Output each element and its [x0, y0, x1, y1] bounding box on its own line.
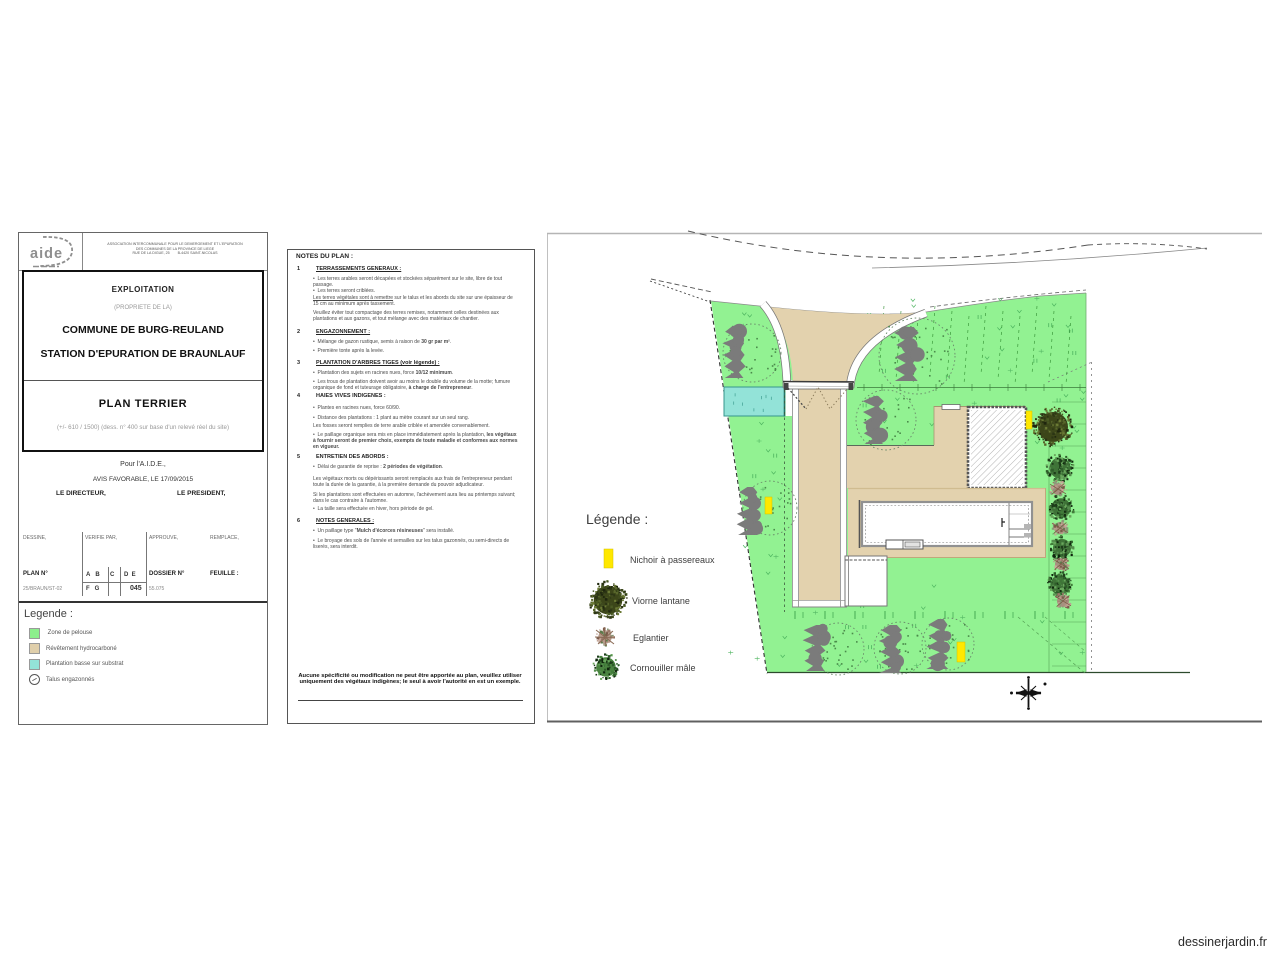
svg-text:Légende :: Légende :: [586, 511, 648, 527]
svg-text:aide: aide: [30, 246, 63, 262]
svg-text:Viorne lantane: Viorne lantane: [632, 596, 690, 606]
svg-text:Nichoir à passereaux: Nichoir à passereaux: [630, 555, 715, 565]
svg-text:Eglantier: Eglantier: [633, 633, 669, 643]
svg-text:Cornouiller mâle: Cornouiller mâle: [630, 663, 696, 673]
